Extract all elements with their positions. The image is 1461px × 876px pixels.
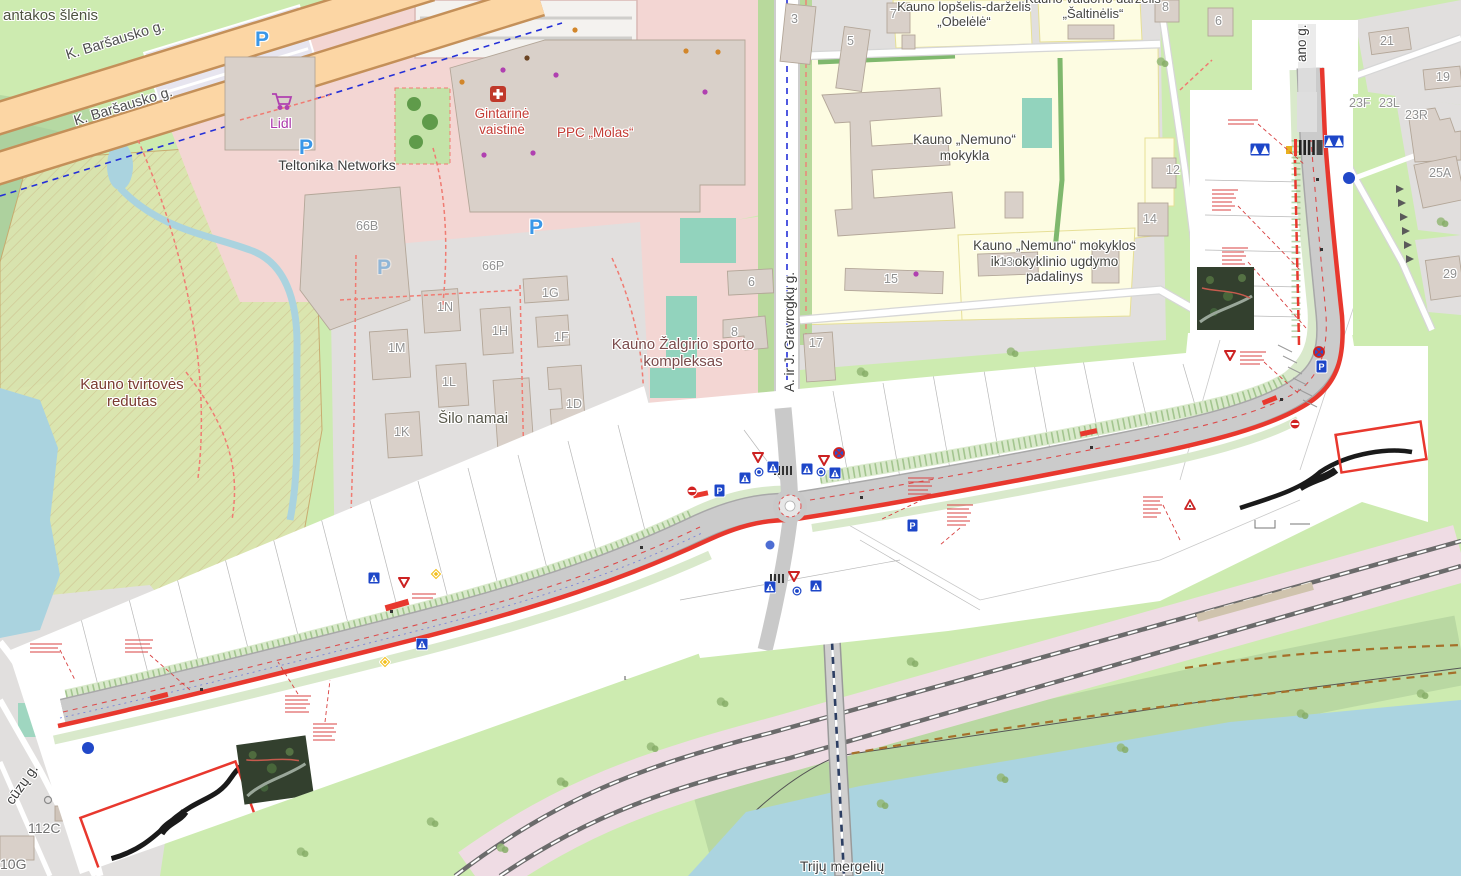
crosswalk-sign-icon bbox=[368, 572, 380, 584]
crosswalk-sign-icon bbox=[739, 472, 751, 484]
crosswalk-sign-pair-icon bbox=[1250, 143, 1270, 156]
blue-marker-icon bbox=[1343, 172, 1355, 184]
roundabout-sign-icon bbox=[754, 467, 764, 477]
roundabout-sign-icon bbox=[816, 467, 826, 477]
parking-sign: P bbox=[1316, 360, 1327, 373]
crosswalk-sign-pair-icon bbox=[1324, 135, 1344, 148]
crosswalk-sign-icon bbox=[764, 581, 776, 593]
no-stopping-sign-icon bbox=[1314, 347, 1324, 357]
crosswalk-sign-icon bbox=[801, 463, 813, 475]
parking-sign: P bbox=[714, 484, 725, 497]
crosswalk-sign-icon bbox=[810, 580, 822, 592]
blue-marker-icon bbox=[82, 742, 94, 754]
svg-text:P: P bbox=[1318, 362, 1324, 372]
svg-text:P: P bbox=[909, 521, 915, 531]
blue-marker-icon bbox=[766, 541, 775, 550]
base-map-canvas[interactable]: P P P bbox=[0, 0, 1461, 876]
map-viewport[interactable]: P P P antakos šlėnis K. Baršausko g. K. … bbox=[0, 0, 1461, 876]
roundabout-sign-icon bbox=[792, 586, 802, 596]
pharmacy-cross-icon bbox=[490, 86, 506, 102]
crosswalk-sign-icon bbox=[829, 467, 841, 479]
no-stopping-sign-icon bbox=[834, 448, 844, 458]
parking-sign: P bbox=[907, 519, 918, 532]
crosswalk-sign-icon bbox=[767, 461, 779, 473]
svg-text:P: P bbox=[716, 486, 722, 496]
no-entry-sign-icon bbox=[687, 486, 697, 496]
no-entry-sign-icon bbox=[1290, 419, 1300, 429]
crosswalk-sign-icon bbox=[416, 638, 428, 650]
